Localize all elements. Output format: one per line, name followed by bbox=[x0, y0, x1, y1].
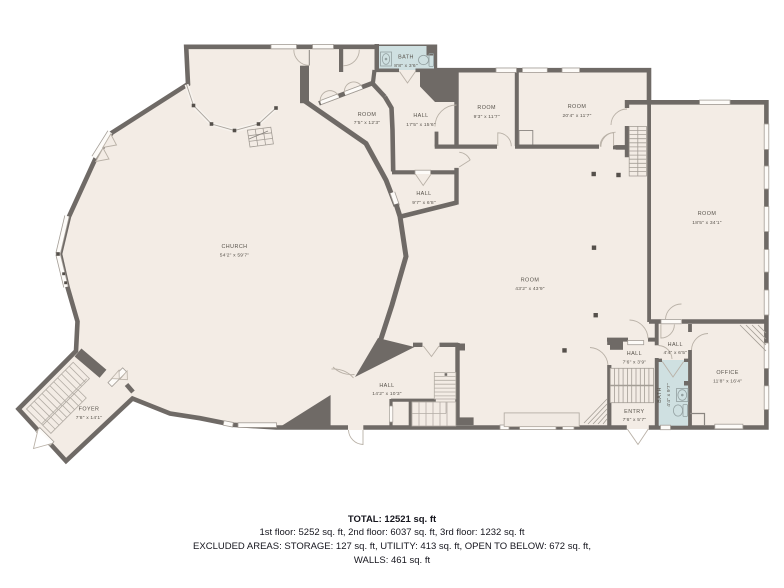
svg-text:HALL: HALL bbox=[627, 351, 642, 357]
svg-text:HALL: HALL bbox=[413, 113, 428, 119]
svg-text:HALL: HALL bbox=[416, 191, 431, 197]
svg-text:ROOM: ROOM bbox=[477, 105, 496, 111]
svg-text:11'8" x 16'4": 11'8" x 16'4" bbox=[713, 379, 742, 385]
svg-text:ROOM: ROOM bbox=[698, 211, 717, 217]
svg-text:7'8" x 14'1": 7'8" x 14'1" bbox=[76, 415, 103, 421]
svg-text:4'4" x 6'5": 4'4" x 6'5" bbox=[664, 350, 688, 356]
svg-text:43'2" x 43'9": 43'2" x 43'9" bbox=[515, 286, 544, 292]
svg-text:4'4" x 9'7": 4'4" x 9'7" bbox=[666, 383, 672, 407]
svg-text:ENTRY: ENTRY bbox=[624, 409, 644, 415]
svg-text:7'6" x 5'7": 7'6" x 5'7" bbox=[623, 417, 647, 423]
svg-text:14'2" x 10'3": 14'2" x 10'3" bbox=[372, 391, 401, 397]
svg-text:54'2" x 59'7": 54'2" x 59'7" bbox=[220, 253, 249, 259]
svg-text:HALL: HALL bbox=[668, 342, 683, 348]
svg-text:ROOM: ROOM bbox=[568, 104, 587, 110]
svg-text:BATH: BATH bbox=[398, 55, 414, 61]
svg-text:7'6" x 3'9": 7'6" x 3'9" bbox=[623, 360, 647, 366]
svg-text:ROOM: ROOM bbox=[521, 278, 540, 284]
svg-text:ROOM: ROOM bbox=[358, 112, 377, 118]
svg-text:HALL: HALL bbox=[379, 383, 394, 389]
svg-text:18'5" x 34'1": 18'5" x 34'1" bbox=[692, 220, 721, 226]
svg-text:CHURCH: CHURCH bbox=[221, 244, 247, 250]
svg-text:BATH: BATH bbox=[657, 387, 663, 403]
svg-text:17'5" x 15'6": 17'5" x 15'6" bbox=[406, 122, 435, 128]
svg-text:FOYER: FOYER bbox=[79, 407, 100, 413]
svg-text:20'4" x 11'7": 20'4" x 11'7" bbox=[562, 113, 591, 119]
svg-text:OFFICE: OFFICE bbox=[716, 370, 738, 376]
svg-text:9'3" x 11'7": 9'3" x 11'7" bbox=[474, 114, 500, 120]
svg-text:7'5" x 12'3": 7'5" x 12'3" bbox=[354, 120, 381, 126]
svg-text:9'7" x 6'8": 9'7" x 6'8" bbox=[412, 200, 436, 206]
svg-text:8'8" x 3'6": 8'8" x 3'6" bbox=[394, 63, 418, 69]
